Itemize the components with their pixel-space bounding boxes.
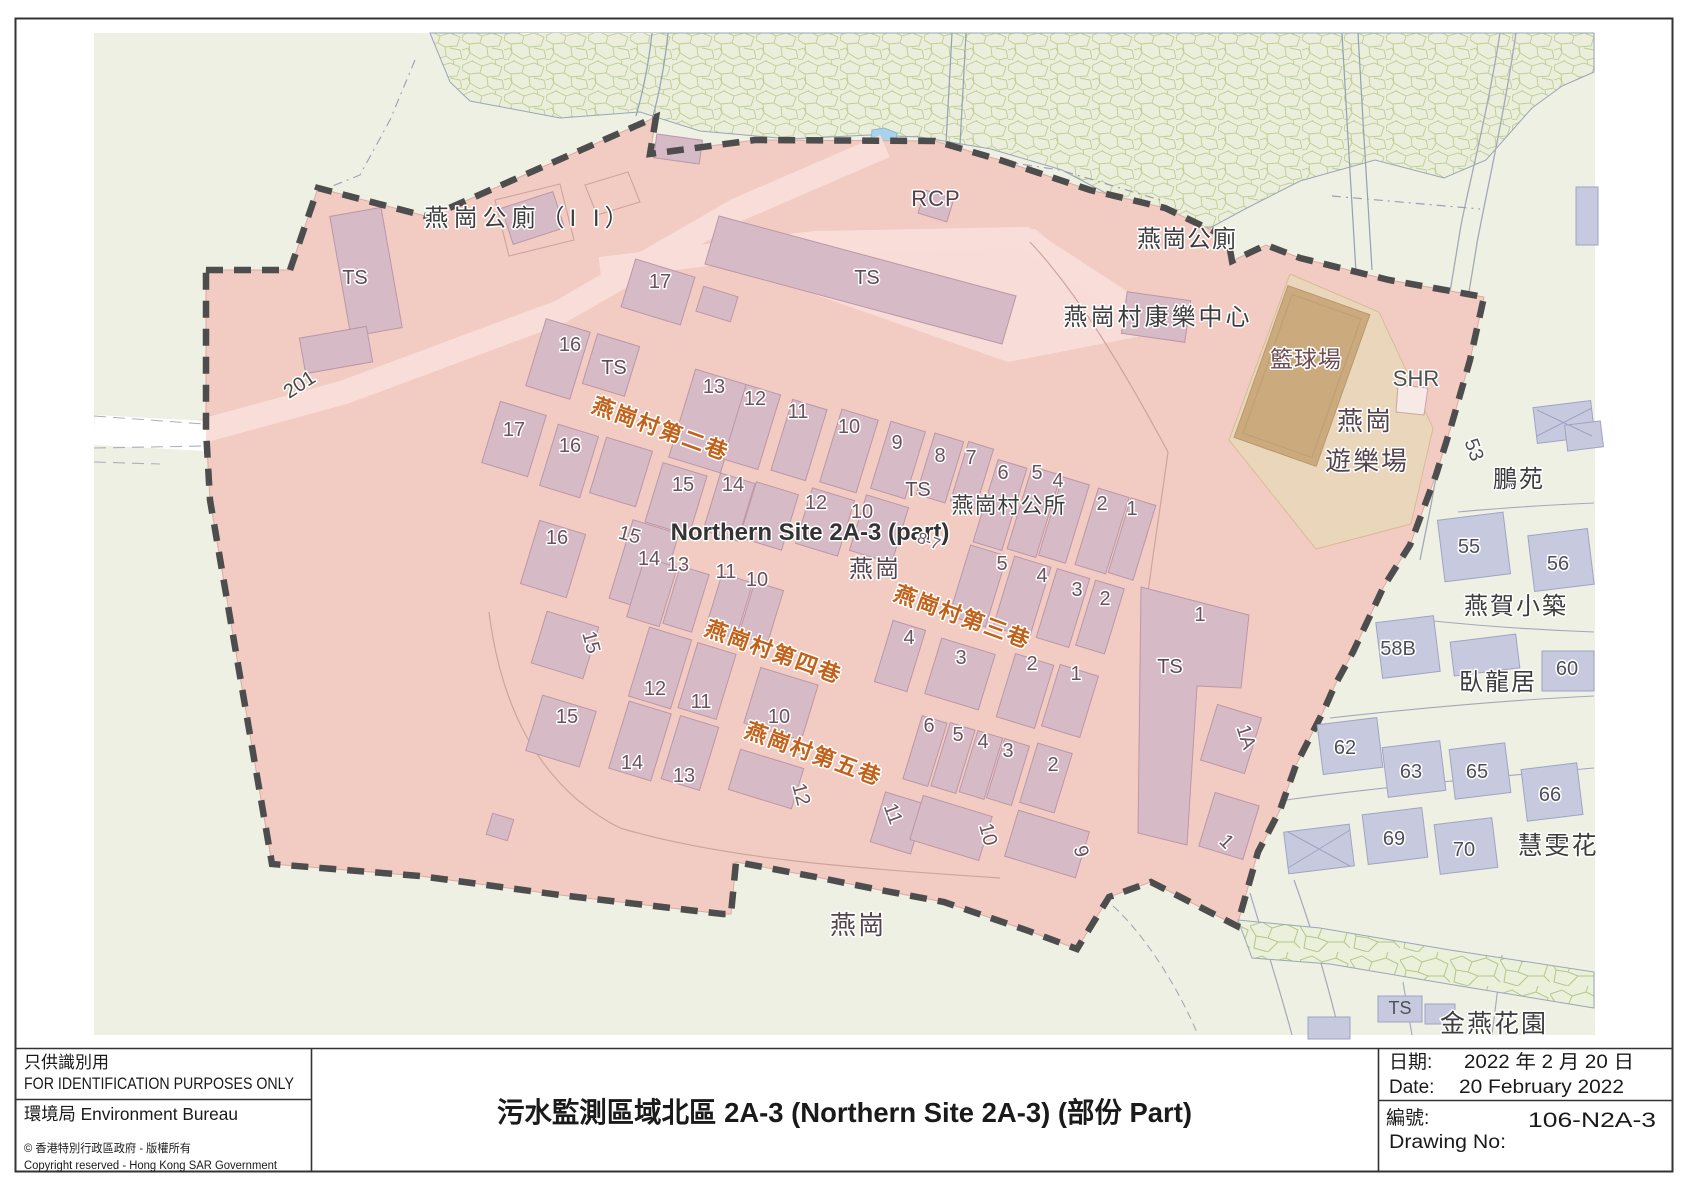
svg-text:Drawing No:: Drawing No: <box>1389 1132 1506 1153</box>
svg-text:10: 10 <box>838 416 860 438</box>
svg-text:TS: TS <box>905 479 931 501</box>
svg-text:11: 11 <box>716 561 737 583</box>
svg-text:慧雯花: 慧雯花 <box>1517 832 1598 860</box>
svg-text:62: 62 <box>1334 737 1356 759</box>
svg-text:污水監測區域北區 2A-3 (Northern Site: 污水監測區域北區 2A-3 (Northern Site 2A-3) (部份 P… <box>497 1097 1192 1128</box>
svg-text:2: 2 <box>1026 653 1037 675</box>
svg-text:FOR IDENTIFICATION PURPOSES ON: FOR IDENTIFICATION PURPOSES ONLY <box>24 1075 294 1093</box>
svg-text:2: 2 <box>1096 493 1107 515</box>
svg-text:4: 4 <box>977 731 988 753</box>
svg-text:6: 6 <box>923 715 934 737</box>
svg-text:燕崗村公所: 燕崗村公所 <box>951 493 1066 518</box>
svg-text:7: 7 <box>965 447 976 469</box>
svg-text:TS: TS <box>1388 998 1411 1018</box>
svg-text:63: 63 <box>1400 761 1422 783</box>
svg-text:15: 15 <box>672 474 694 496</box>
svg-text:14: 14 <box>621 752 643 774</box>
svg-text:2: 2 <box>1099 588 1110 610</box>
svg-text:69: 69 <box>1383 828 1405 850</box>
svg-text:1: 1 <box>1126 498 1137 520</box>
svg-text:TS: TS <box>601 357 627 379</box>
svg-text:8: 8 <box>934 445 945 467</box>
svg-text:環境局 Environment Bureau: 環境局 Environment Bureau <box>24 1104 238 1124</box>
svg-text:燕崗公廁（I I）: 燕崗公廁（I I） <box>424 205 633 232</box>
svg-text:12: 12 <box>644 678 666 700</box>
svg-text:日期:: 日期: <box>1389 1051 1432 1073</box>
svg-text:燕賀小築: 燕賀小築 <box>1464 593 1568 620</box>
svg-text:Date:: Date: <box>1389 1077 1434 1098</box>
svg-text:13: 13 <box>673 765 695 787</box>
svg-text:55: 55 <box>1458 536 1480 558</box>
svg-text:11: 11 <box>788 401 809 423</box>
svg-text:金燕花園: 金燕花園 <box>1440 1010 1548 1038</box>
svg-text:燕崗: 燕崗 <box>830 910 886 940</box>
svg-text:1: 1 <box>1194 604 1205 626</box>
svg-text:臥龍居: 臥龍居 <box>1459 669 1537 696</box>
svg-text:9: 9 <box>891 432 902 454</box>
svg-text:10: 10 <box>746 569 768 591</box>
svg-text:13: 13 <box>667 554 689 576</box>
svg-text:17: 17 <box>503 419 525 441</box>
svg-text:4: 4 <box>1036 565 1047 587</box>
svg-text:5: 5 <box>996 553 1007 575</box>
svg-text:遊樂場: 遊樂場 <box>1325 446 1409 476</box>
svg-text:14: 14 <box>638 548 660 570</box>
svg-text:1: 1 <box>1070 663 1081 685</box>
svg-text:3: 3 <box>1002 740 1013 762</box>
svg-text:編號:: 編號: <box>1386 1107 1429 1129</box>
svg-text:© 香港特別行政區政府 - 版權所有: © 香港特別行政區政府 - 版權所有 <box>24 1141 191 1155</box>
svg-text:TS: TS <box>854 267 880 289</box>
svg-text:13: 13 <box>703 376 725 398</box>
svg-text:2022 年 2 月 20 日: 2022 年 2 月 20 日 <box>1464 1051 1634 1073</box>
svg-text:11: 11 <box>691 691 712 713</box>
svg-text:鵬苑: 鵬苑 <box>1493 466 1545 493</box>
svg-text:70: 70 <box>1453 839 1475 861</box>
svg-text:10: 10 <box>851 501 873 523</box>
svg-text:Northern Site 2A-3 (part): Northern Site 2A-3 (part) <box>671 519 950 546</box>
svg-text:RCP: RCP <box>911 186 960 211</box>
svg-text:58B: 58B <box>1380 638 1416 660</box>
svg-text:5: 5 <box>952 724 963 746</box>
svg-text:56: 56 <box>1547 553 1569 575</box>
svg-text:16: 16 <box>559 435 581 457</box>
svg-text:20 February 2022: 20 February 2022 <box>1459 1077 1624 1098</box>
svg-text:籃球場: 籃球場 <box>1270 346 1342 372</box>
svg-text:15: 15 <box>556 706 578 728</box>
svg-text:TS: TS <box>1157 656 1183 678</box>
svg-text:60: 60 <box>1556 658 1578 680</box>
svg-text:TS: TS <box>342 267 368 289</box>
svg-text:16: 16 <box>559 334 581 356</box>
svg-text:3: 3 <box>1071 579 1082 601</box>
svg-text:燕崗村康樂中心: 燕崗村康樂中心 <box>1064 304 1253 331</box>
svg-text:66: 66 <box>1539 784 1561 806</box>
svg-text:SHR: SHR <box>1393 366 1439 391</box>
svg-text:燕崗公廁: 燕崗公廁 <box>1137 226 1237 253</box>
svg-text:燕崗: 燕崗 <box>849 556 901 583</box>
svg-text:14: 14 <box>722 474 744 496</box>
svg-text:12: 12 <box>805 492 827 514</box>
svg-text:12: 12 <box>744 388 766 410</box>
svg-text:16: 16 <box>546 527 568 549</box>
svg-text:Copyright reserved - Hong Kong: Copyright reserved - Hong Kong SAR Gover… <box>24 1160 278 1172</box>
svg-text:3: 3 <box>955 647 966 669</box>
svg-text:4: 4 <box>1052 470 1063 492</box>
svg-text:燕崗: 燕崗 <box>1337 406 1393 436</box>
svg-text:2: 2 <box>1047 754 1058 776</box>
svg-text:10: 10 <box>768 706 790 728</box>
svg-text:只供識別用: 只供識別用 <box>24 1053 109 1072</box>
svg-text:17: 17 <box>649 271 671 293</box>
svg-text:5: 5 <box>1031 462 1042 484</box>
svg-text:106-N2A-3: 106-N2A-3 <box>1528 1109 1656 1132</box>
svg-text:4: 4 <box>903 627 914 649</box>
svg-text:65: 65 <box>1466 761 1488 783</box>
svg-text:6: 6 <box>997 462 1008 484</box>
